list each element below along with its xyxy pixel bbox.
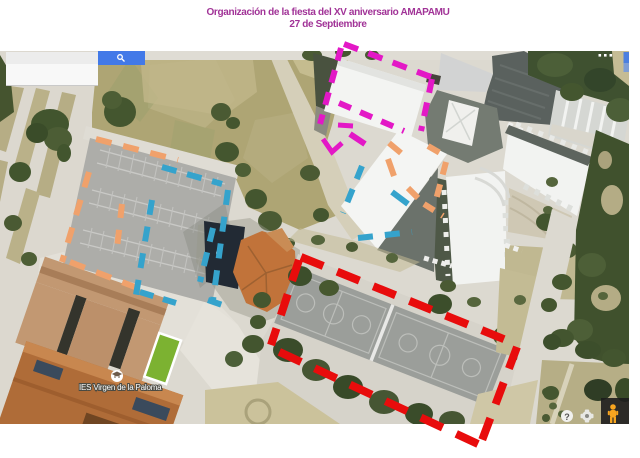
- svg-text:?: ?: [564, 412, 570, 422]
- svg-text:IES Virgen de la Paloma: IES Virgen de la Paloma: [79, 383, 162, 392]
